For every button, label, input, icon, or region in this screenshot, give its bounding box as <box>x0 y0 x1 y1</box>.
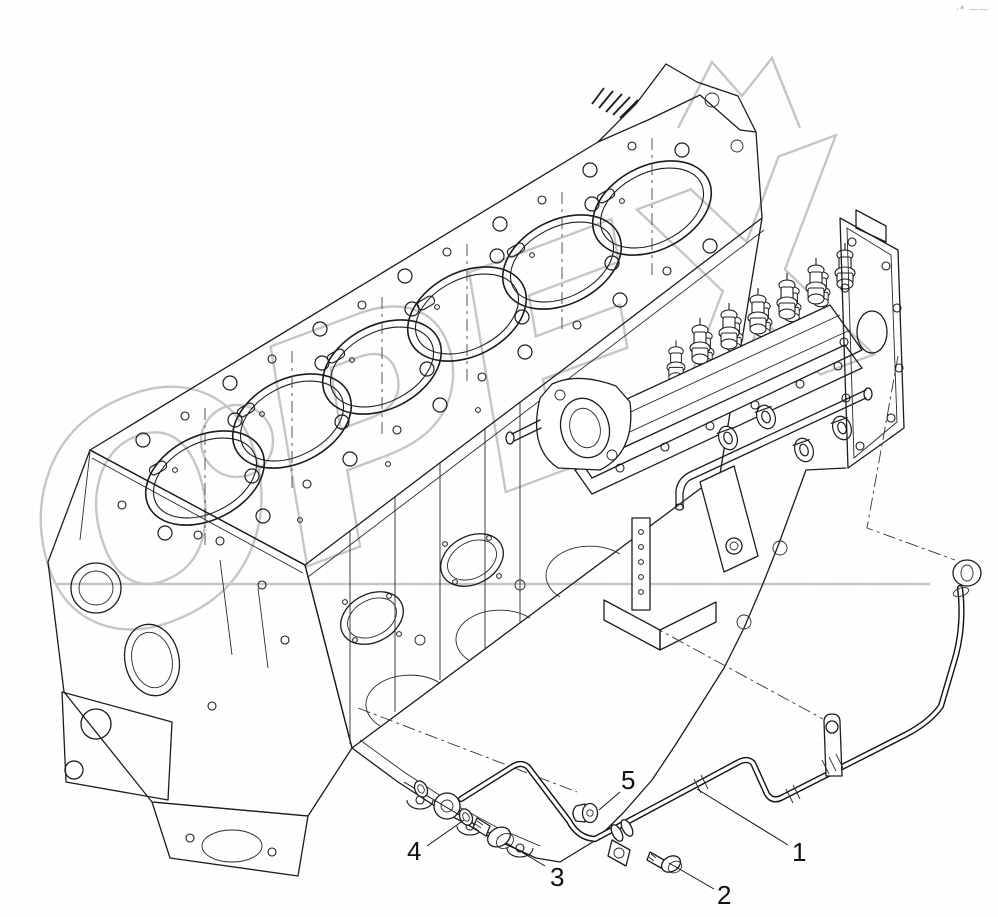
callout-3: 3 <box>550 862 564 892</box>
pipe-clamp <box>608 818 635 866</box>
parts-diagram: ОРЕХ ·* —— <box>0 0 998 917</box>
corner-mark: ·* —— <box>956 5 989 15</box>
callout-4: 4 <box>407 820 464 866</box>
callouts: 1 2 3 4 5 <box>407 765 806 910</box>
callout-label-1: 1 <box>792 837 806 867</box>
callout-label-4: 4 <box>407 836 421 866</box>
callout-5: 5 <box>599 765 635 810</box>
rubber-damper <box>573 804 598 823</box>
callout-label-5: 5 <box>621 765 635 795</box>
callout-leader-2 <box>669 863 714 889</box>
watermark: ОРЕХ <box>0 58 937 722</box>
refline-banjo <box>358 708 577 792</box>
callout-2: 2 <box>669 863 731 910</box>
refline-strap <box>630 614 823 719</box>
callout-leader-5 <box>599 792 620 810</box>
hatch-pad <box>592 88 638 118</box>
ball-end <box>952 560 981 598</box>
pipe-tube <box>461 588 961 839</box>
clamp-bolt <box>647 852 684 875</box>
callout-1: 1 <box>697 789 806 867</box>
callout-label-3: 3 <box>550 862 564 892</box>
watermark-text: ОРЕХ <box>0 80 937 722</box>
parts-diagram-page: ОРЕХ ·* —— <box>0 0 998 917</box>
callout-leader-4 <box>427 820 464 846</box>
banjo-bolt <box>473 818 516 852</box>
support-strap <box>822 714 843 776</box>
banjo-eye <box>434 793 460 819</box>
callout-label-2: 2 <box>717 880 731 910</box>
